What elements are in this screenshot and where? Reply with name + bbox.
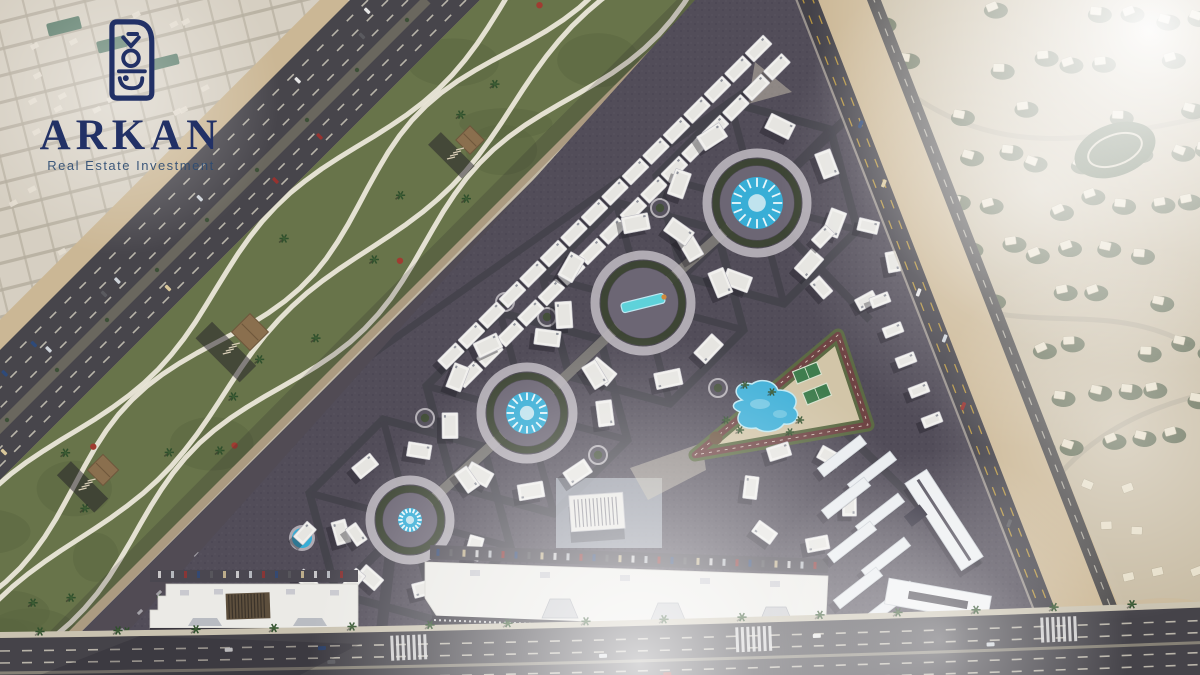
parked-car — [171, 571, 174, 578]
roundabout-green — [656, 204, 664, 212]
palm-tree-icon — [493, 83, 496, 86]
roundabout-green — [543, 313, 551, 321]
median-palm-icon — [405, 18, 409, 22]
pergola-slat — [229, 595, 230, 619]
pergola-slat — [261, 594, 262, 618]
aerial-masterplan-render: ARKAN Real Estate Investment — [0, 0, 1200, 675]
pool-island — [748, 194, 766, 212]
palm-tree-icon — [168, 451, 171, 454]
masterplan-scene — [0, 0, 1200, 675]
parked-car — [197, 571, 200, 578]
palm-tree-icon — [258, 358, 261, 361]
palm-tree-icon — [70, 596, 73, 599]
flowering-bush — [397, 258, 403, 264]
pergola-slat — [232, 595, 233, 619]
median-palm-icon — [305, 118, 309, 122]
palm-tree-icon — [465, 197, 468, 200]
palm-tree-icon — [195, 628, 198, 631]
pergola-slat — [254, 594, 255, 618]
palm-tree-icon — [32, 601, 35, 604]
parked-car — [301, 571, 304, 578]
entrance-canopy — [188, 618, 222, 626]
palm-tree-icon — [232, 395, 235, 398]
flowering-bush — [90, 443, 96, 449]
palm-tree-icon — [39, 630, 42, 633]
palm-tree-icon — [84, 507, 87, 510]
pool-accent — [661, 294, 666, 299]
median-palm-icon — [55, 368, 59, 372]
parked-car — [288, 571, 291, 578]
pergola-slat — [238, 594, 239, 618]
parked-car — [249, 571, 252, 578]
palm-tree-icon — [399, 194, 402, 197]
parked-car — [223, 571, 226, 578]
parked-car — [236, 571, 239, 578]
flowering-bush — [536, 2, 542, 8]
rooftop-unit — [286, 589, 295, 595]
palm-tree-icon — [117, 629, 120, 632]
pergola-slat — [257, 594, 258, 618]
parked-car — [275, 571, 278, 578]
palm-tree-icon — [283, 237, 286, 240]
rooftop-ac-unit — [556, 333, 559, 335]
median-palm-icon — [155, 268, 159, 272]
pergola-slat — [251, 594, 252, 618]
pergola-slat — [241, 594, 242, 618]
pergola-slat — [264, 593, 265, 617]
parked-car — [184, 571, 187, 578]
pergola-roof — [226, 592, 271, 620]
pergola-slat — [235, 594, 236, 618]
parked-car — [210, 571, 213, 578]
palm-tree-icon — [459, 113, 462, 116]
rooftop-unit — [214, 589, 223, 595]
parked-car — [314, 571, 317, 578]
median-palm-icon — [355, 68, 359, 72]
rooftop-ac-unit — [557, 304, 559, 307]
pergola-slat — [248, 594, 249, 618]
palm-tree-icon — [373, 258, 376, 261]
palm-tree-icon — [314, 337, 317, 340]
rooftop-inset — [557, 304, 570, 326]
rooftop-unit — [180, 590, 189, 596]
palm-tree-icon — [273, 626, 276, 629]
palm-tree-icon — [64, 451, 67, 454]
parked-car — [158, 571, 161, 578]
parked-car — [262, 571, 265, 578]
median-palm-icon — [105, 318, 109, 322]
pergola-slat — [245, 594, 246, 618]
median-palm-icon — [5, 418, 9, 422]
palm-tree-icon — [218, 449, 221, 452]
